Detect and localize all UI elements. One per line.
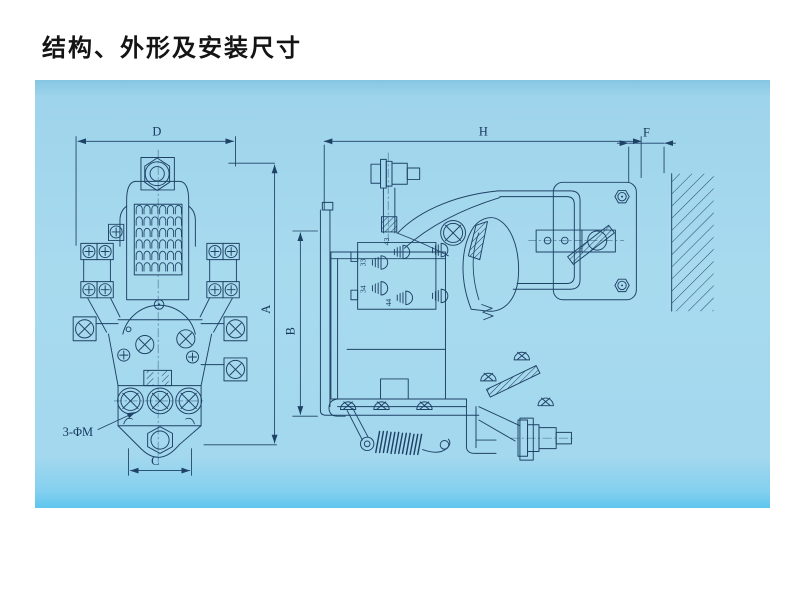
terminal-label-33: 33 — [358, 259, 367, 267]
contact-mechanism — [109, 300, 212, 386]
dim-c: C — [129, 449, 192, 476]
terminal-block — [73, 317, 247, 457]
page-title: 结构、外形及安装尺寸 — [42, 28, 302, 63]
return-spring — [376, 431, 422, 454]
right-bracket — [200, 243, 239, 332]
housing-screw — [441, 221, 466, 246]
bottom-bolt — [510, 418, 575, 460]
left-bracket — [81, 243, 120, 332]
top-nut — [141, 158, 174, 191]
terminal-label-44: 44 — [384, 299, 393, 307]
page: 结构、外形及安装尺寸 — [0, 0, 800, 600]
main-housing — [331, 191, 615, 399]
dim-b: B — [284, 231, 318, 416]
dim-label-d: D — [152, 125, 161, 139]
mounting-hole-label: 3-ΦM — [63, 425, 93, 439]
terminal-label-43: 43 — [382, 238, 391, 246]
front-view: D A C 3-ΦM — [63, 125, 277, 476]
dim-d: D — [76, 125, 235, 246]
mounting-wall — [672, 174, 714, 311]
blueprint-svg: D A C 3-ΦM — [35, 80, 770, 508]
left-side-screw — [109, 224, 124, 240]
dim-label-f: F — [643, 126, 650, 140]
coil-body — [120, 181, 195, 299]
dim-label-a: A — [259, 305, 273, 314]
drawing-panel: D A C 3-ΦM — [35, 80, 770, 508]
side-view: H F B — [284, 125, 714, 461]
dim-a: A — [204, 163, 277, 445]
terminal-label-34: 34 — [358, 285, 367, 293]
dim-label-h: H — [479, 125, 488, 139]
dim-label-b: B — [284, 327, 298, 335]
arc-chute-grid — [136, 205, 181, 271]
dim-h: H — [324, 125, 641, 210]
dim-f: F — [617, 126, 675, 183]
